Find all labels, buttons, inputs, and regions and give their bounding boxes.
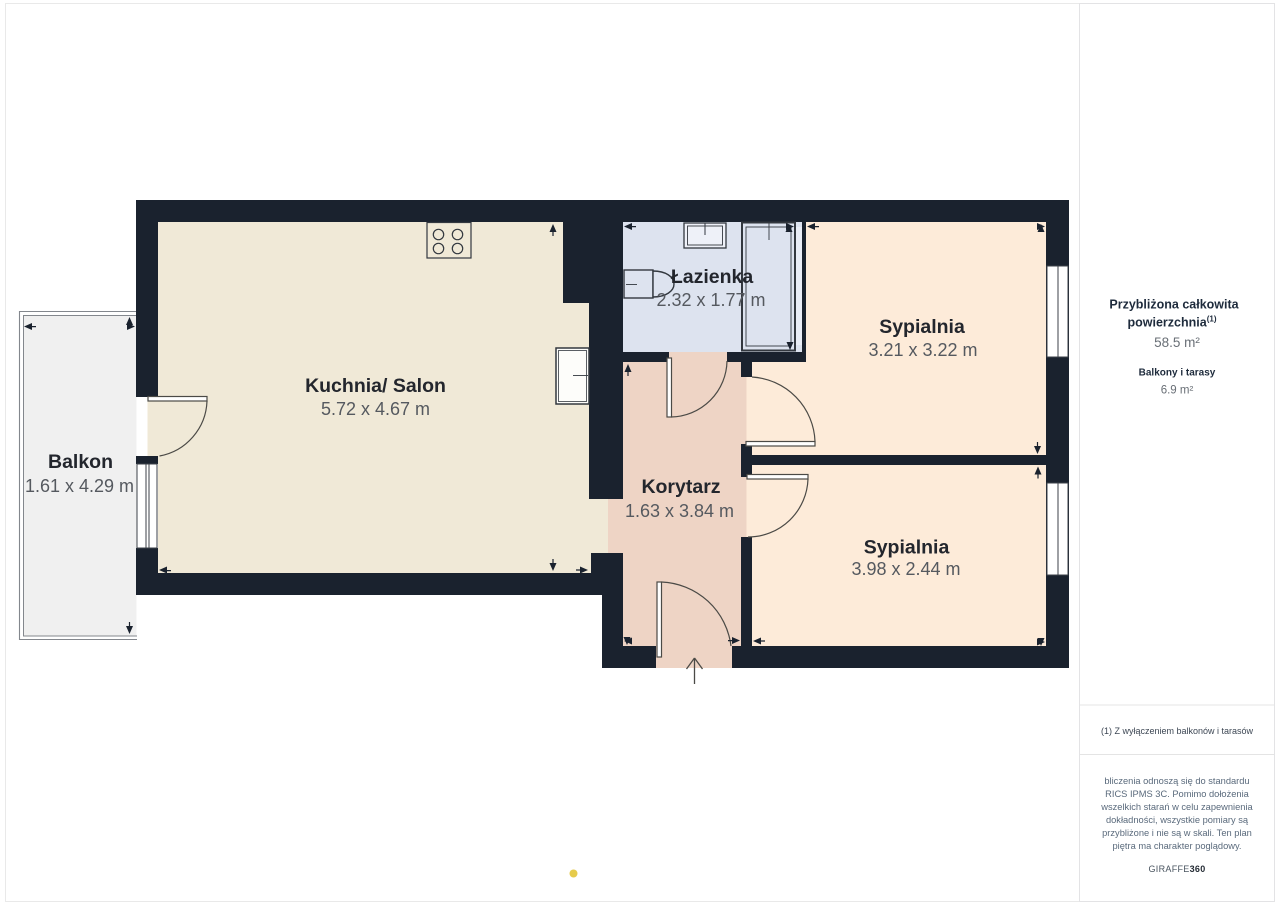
svg-text:GIRAFFE360: GIRAFFE360: [1148, 864, 1205, 874]
svg-text:Balkony i tarasy: Balkony i tarasy: [1139, 368, 1216, 379]
svg-text:Balkon: Balkon: [48, 451, 113, 473]
svg-text:1.63 x 3.84 m: 1.63 x 3.84 m: [625, 501, 734, 521]
svg-text:6.9 m²: 6.9 m²: [1161, 385, 1194, 397]
svg-text:powierzchnia(1): powierzchnia(1): [1128, 315, 1217, 330]
svg-text:Sypialnia: Sypialnia: [879, 316, 965, 338]
svg-text:Łazienka: Łazienka: [671, 266, 754, 288]
svg-text:dokładności, wszystkie pomiary: dokładności, wszystkie pomiary są: [1106, 815, 1249, 825]
svg-text:1.61 x 4.29 m: 1.61 x 4.29 m: [25, 476, 134, 496]
svg-text:RICS IPMS 3C. Pomimo dołożenia: RICS IPMS 3C. Pomimo dołożenia: [1105, 789, 1249, 799]
svg-text:Sypialnia: Sypialnia: [864, 537, 950, 559]
svg-text:wszelkich starań w celu zapewn: wszelkich starań w celu zapewnienia: [1100, 802, 1253, 812]
svg-text:Przybliżona całkowita: Przybliżona całkowita: [1109, 298, 1239, 312]
svg-text:2.32 x 1.77 m: 2.32 x 1.77 m: [656, 290, 765, 310]
svg-text:58.5 m²: 58.5 m²: [1154, 335, 1200, 350]
svg-text:przybliżone i nie są w skali.: przybliżone i nie są w skali. Ten plan: [1102, 828, 1252, 838]
svg-text:bliczenia odnoszą się do stand: bliczenia odnoszą się do standardu: [1104, 776, 1249, 786]
svg-text:Korytarz: Korytarz: [641, 476, 720, 498]
svg-text:(1) Z wyłączeniem balkonów i t: (1) Z wyłączeniem balkonów i tarasów: [1101, 726, 1254, 736]
svg-text:5.72 x 4.67 m: 5.72 x 4.67 m: [321, 399, 430, 419]
svg-text:3.21 x 3.22 m: 3.21 x 3.22 m: [868, 340, 977, 360]
svg-text:3.98 x 2.44 m: 3.98 x 2.44 m: [851, 559, 960, 579]
svg-text:Kuchnia/ Salon: Kuchnia/ Salon: [305, 375, 446, 397]
svg-text:piętra ma charakter poglądowy.: piętra ma charakter poglądowy.: [1112, 841, 1241, 851]
